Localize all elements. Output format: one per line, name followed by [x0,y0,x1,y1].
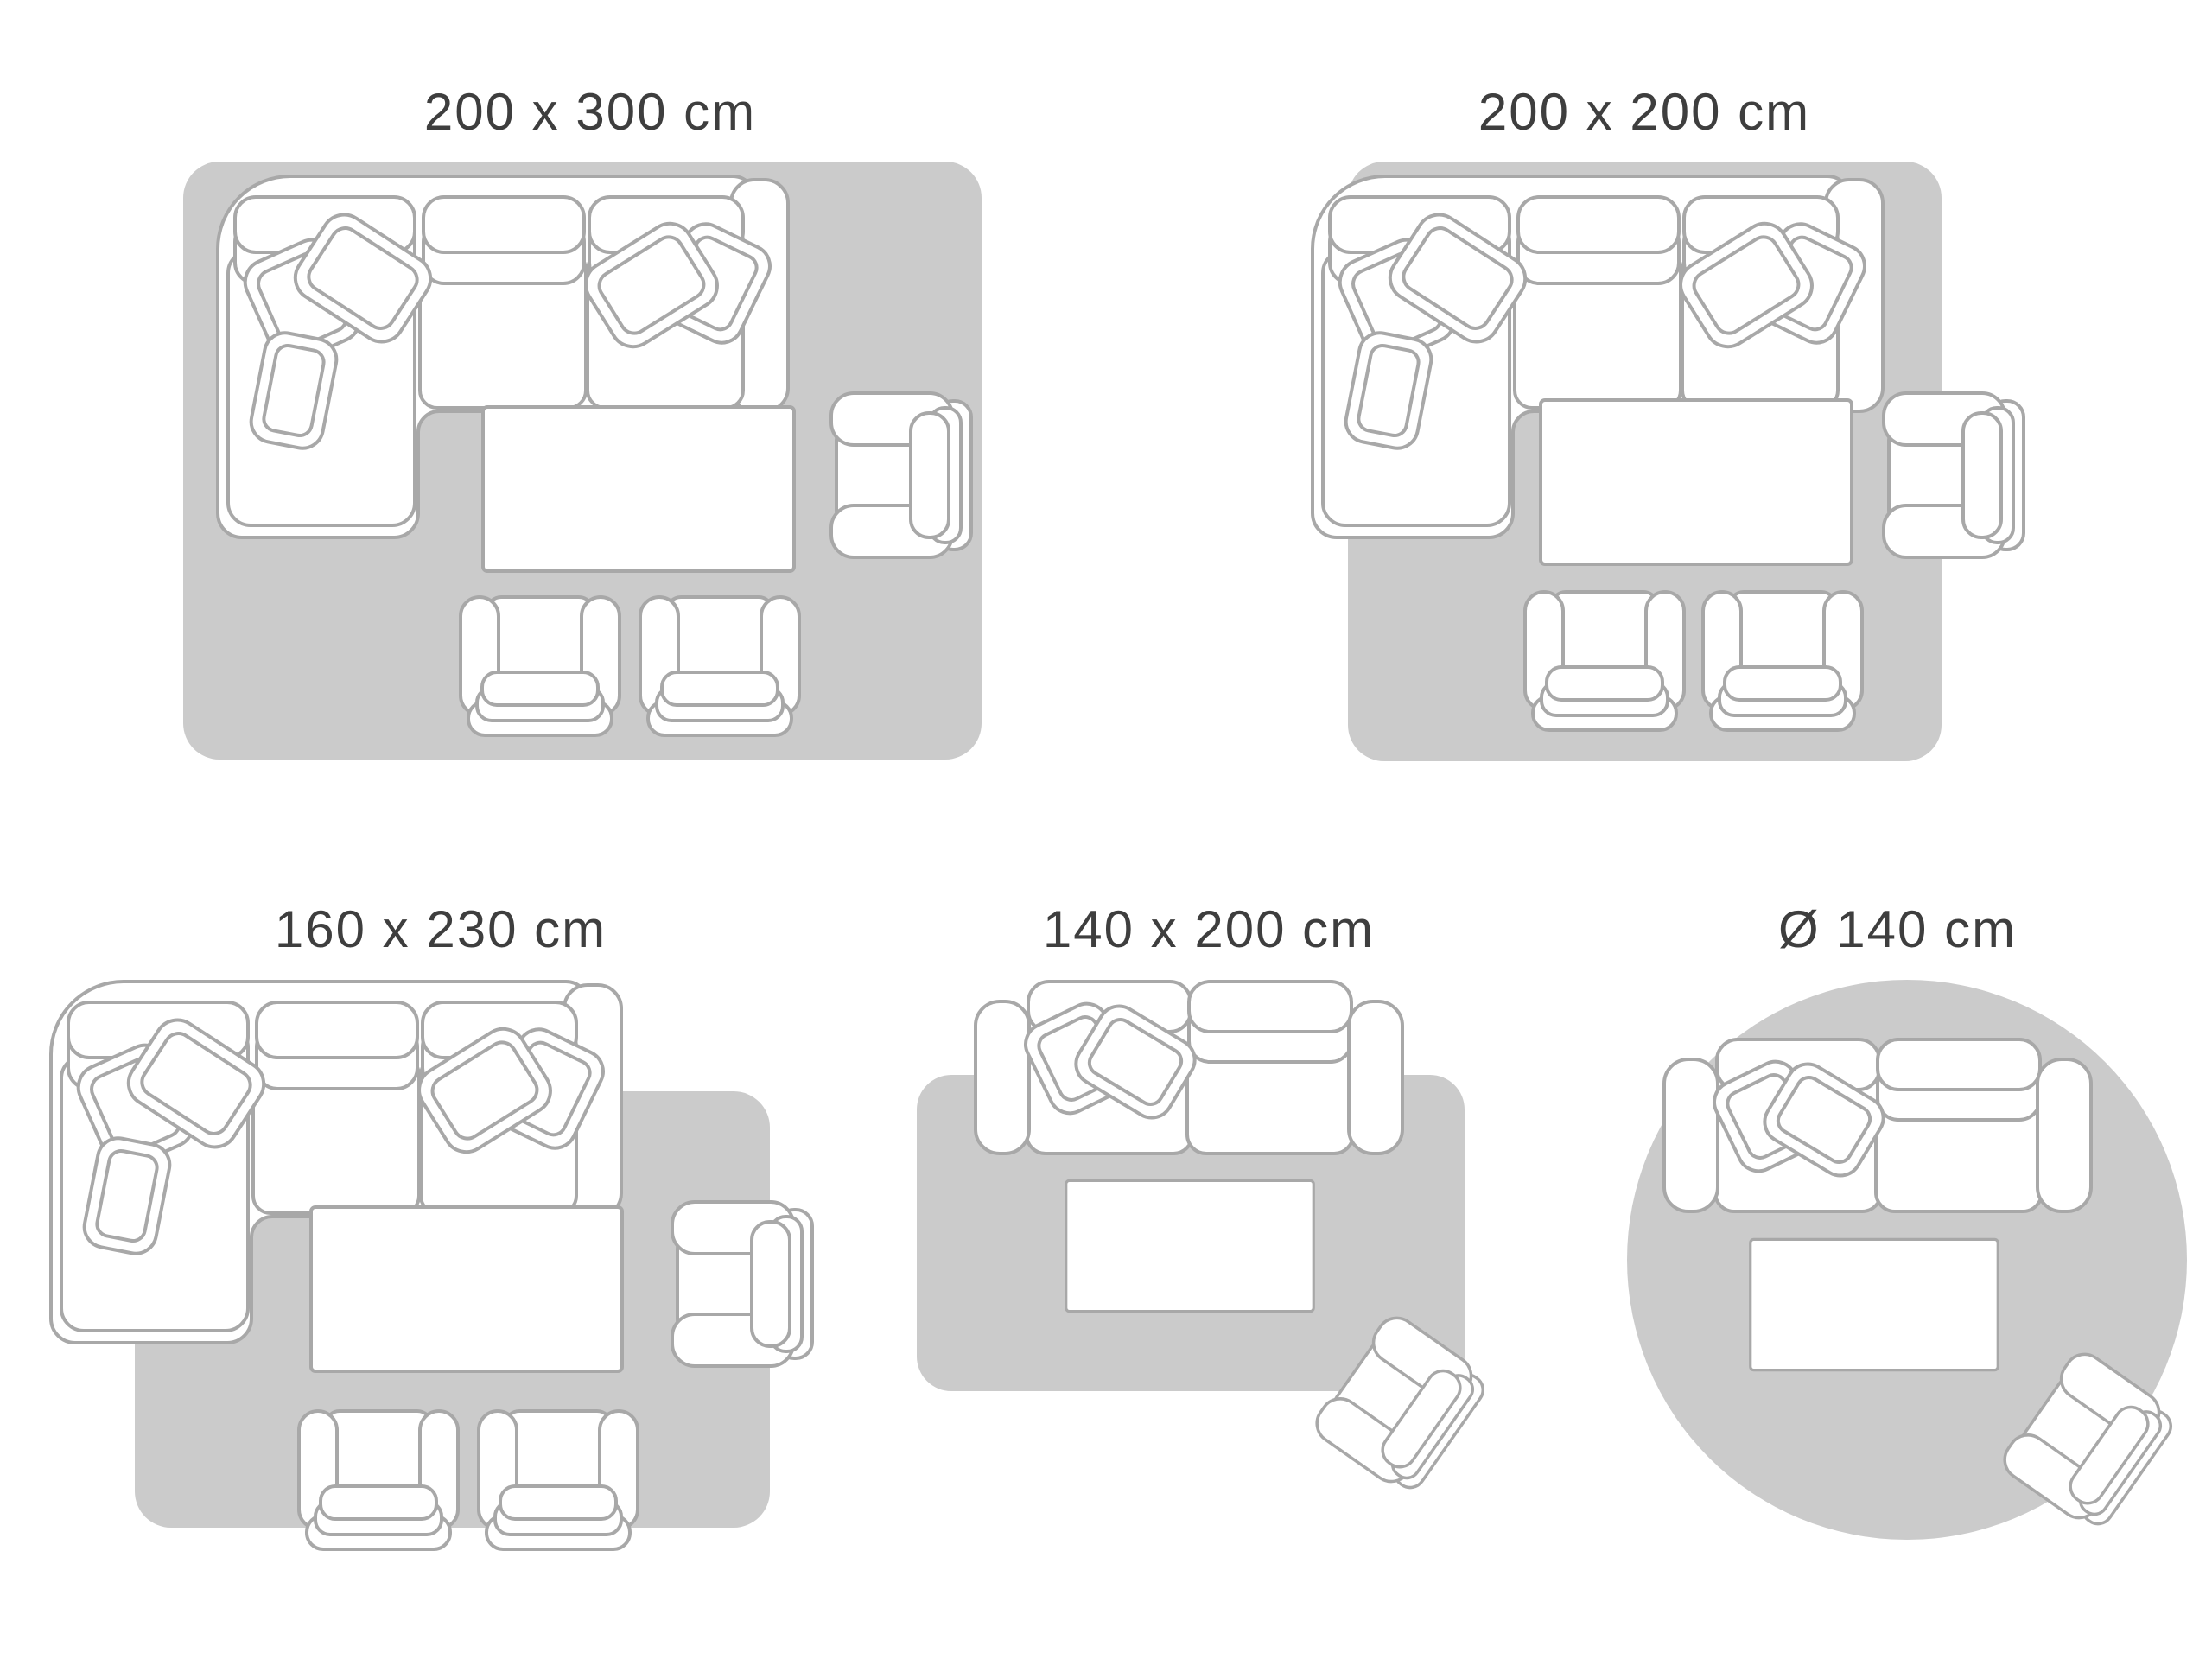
coffee-table [483,407,794,571]
two-seat-sofa [1664,1039,2091,1211]
coffee-table [1541,400,1852,564]
armchair [831,393,971,557]
coffee-table [311,1207,622,1371]
footstool-right [479,1411,638,1549]
coffee-table [1066,1180,1314,1311]
footstool-left [461,597,620,735]
armchair [672,1202,812,1366]
two-seat-sofa [976,982,1402,1154]
diagram-200x200 [1313,162,2024,761]
diagram-200x300 [183,162,982,760]
footstool-left [1525,592,1684,730]
footstool-right [640,597,799,735]
footstool-left [299,1411,458,1549]
armchair [1884,393,2024,557]
diagram-160x230 [51,982,812,1549]
coffee-table [1751,1239,1999,1370]
rug-size-guide-illustration [0,0,2212,1659]
footstool-right [1703,592,1862,730]
diagram-round-140 [1627,980,2187,1540]
diagram-140x200 [917,982,1492,1499]
